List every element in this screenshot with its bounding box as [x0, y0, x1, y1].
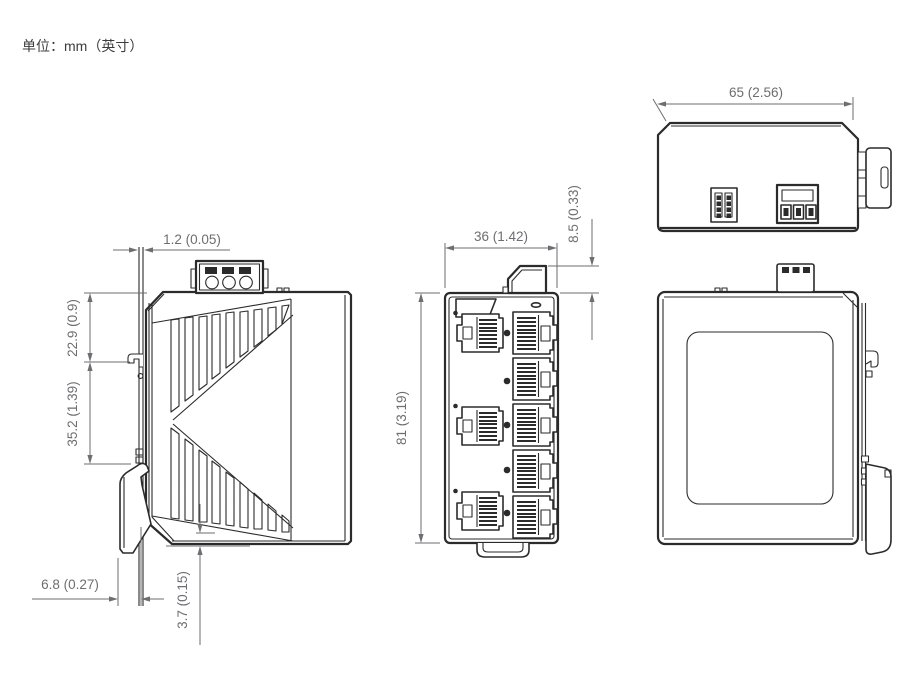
dim-label-bottom-clearance: 3.7 (0.15): [175, 571, 190, 629]
dim-label-top-to-hook: 22.9 (0.9): [65, 299, 80, 357]
dim-label-depth: 65 (2.56): [729, 85, 783, 100]
dim-label-terminal-protrusion: 8.5 (0.33): [566, 185, 581, 243]
left-side-view: 1.2 (0.05) 22.9 (0.9) 35.2 (1.39): [32, 232, 351, 645]
din-mount-right-side: [862, 303, 892, 554]
rj45-port-right-5: [513, 496, 557, 538]
dim-top-to-hook: 22.9 (0.9): [65, 293, 147, 362]
right-body-outline: [658, 292, 858, 544]
power-terminal-block-side: [191, 261, 268, 293]
dim-label-rail-thickness: 1.2 (0.05): [163, 232, 221, 247]
terminal-wire-slots: [205, 267, 251, 274]
dim-hook-span: 35.2 (1.39): [65, 362, 131, 464]
right-side-view: [658, 264, 891, 554]
dim-label-clip-depth: 6.8 (0.27): [41, 577, 99, 592]
rj45-port-right-4: [513, 450, 557, 492]
din-mount-top: [858, 148, 891, 208]
dim-front-height: 81 (3.19): [394, 293, 440, 543]
terminal-housing: [196, 261, 263, 293]
power-terminal-right-side: [777, 264, 814, 292]
drawing-canvas: 1.2 (0.05) 22.9 (0.9) 35.2 (1.39): [0, 0, 900, 688]
bottom-din-latch: [477, 543, 529, 557]
top-body-outline: [658, 123, 858, 231]
dip-switch: [711, 188, 737, 222]
top-view: 65 (2.56): [653, 85, 891, 231]
dim-label-hook-span: 35.2 (1.39): [65, 381, 80, 446]
dimension-drawing-page: 单位：mm（英寸）: [0, 0, 900, 688]
power-terminal-top: [777, 185, 818, 223]
port-led-dot: [453, 404, 458, 409]
dim-label-front-height: 81 (3.19): [394, 391, 409, 445]
dim-rail-thickness: 1.2 (0.05): [113, 232, 230, 253]
front-view: 36 (1.42) 81 (3.19) 8.5 (0.33): [394, 185, 599, 557]
dim-depth: 65 (2.56): [653, 85, 853, 121]
dim-label-front-width: 36 (1.42): [474, 229, 528, 244]
rj45-port-right-1: [513, 312, 557, 354]
terminal-step: [503, 287, 508, 293]
rj45-port-right-3: [513, 404, 557, 446]
rj45-port-right-2: [513, 358, 557, 400]
dim-clip-depth: 6.8 (0.27): [32, 527, 164, 606]
port-led-dot: [453, 311, 458, 316]
port-led-dot: [453, 489, 458, 494]
rail-hook-upper: [128, 354, 143, 367]
